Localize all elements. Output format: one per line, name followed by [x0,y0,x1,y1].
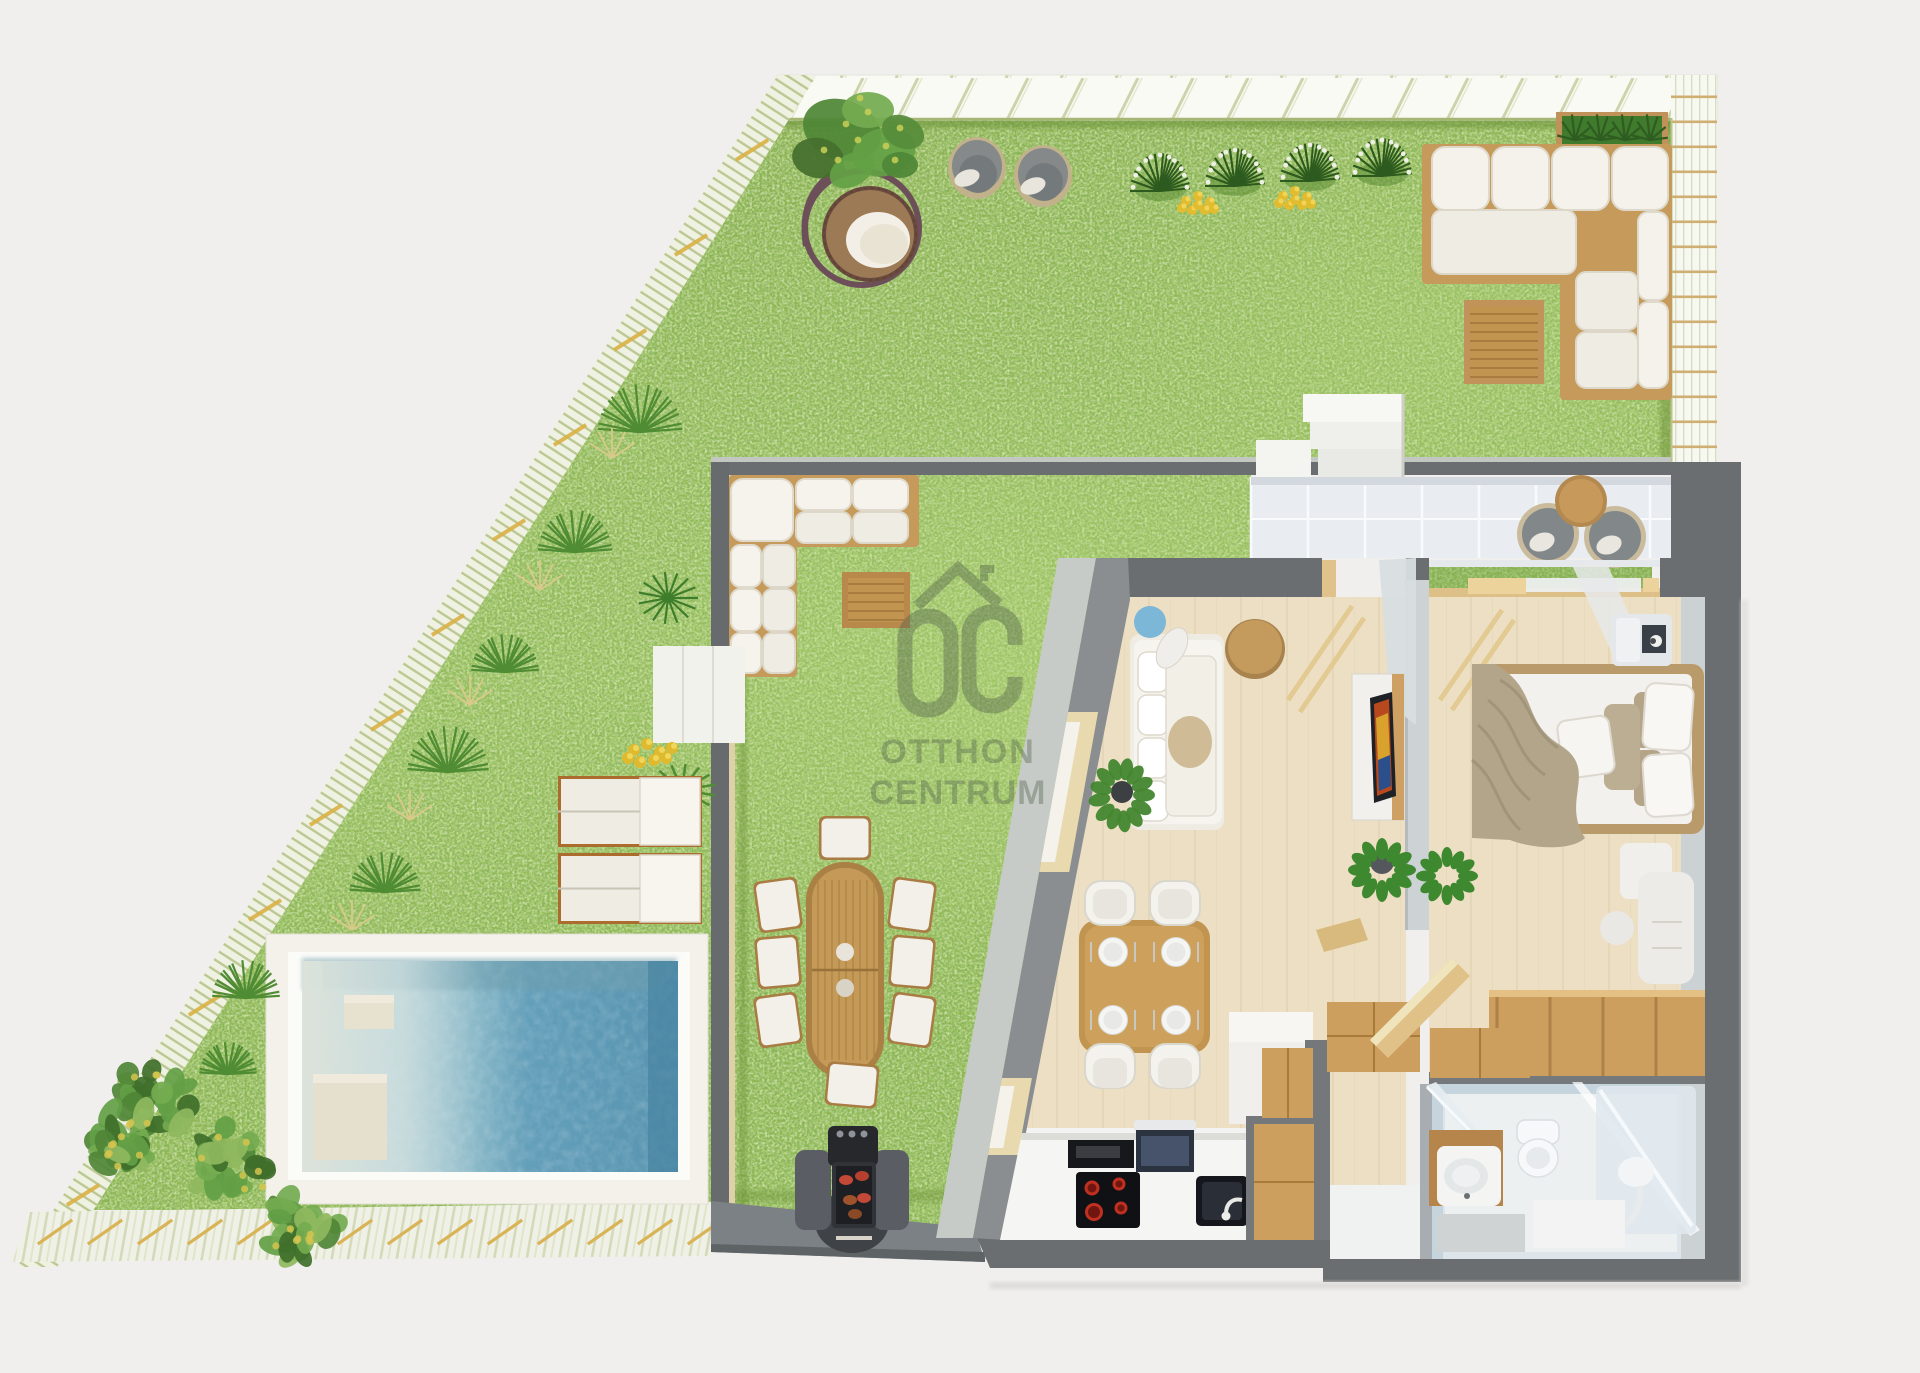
svg-text:CENTRUM: CENTRUM [870,774,1047,812]
svg-text:OTTHON: OTTHON [880,733,1036,771]
